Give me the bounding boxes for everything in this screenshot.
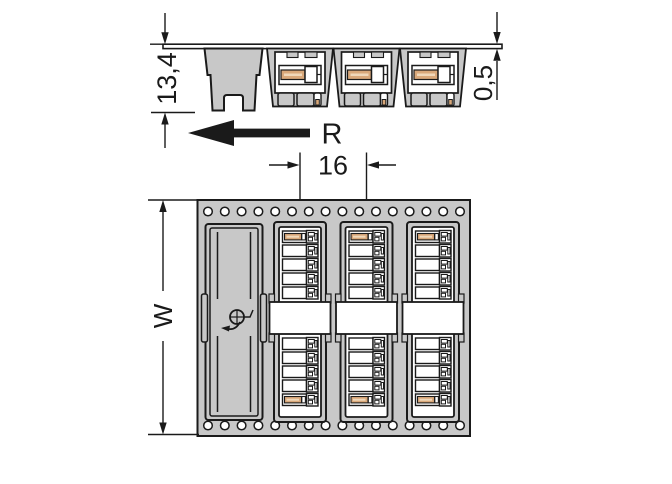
- technical-drawing: 13,4 0,5 R 16: [0, 0, 672, 484]
- height-dimension-label: 13,4: [152, 52, 182, 105]
- connector-strip-top-view-3: [402, 222, 464, 422]
- unreeling-direction-label: R: [322, 119, 343, 151]
- empty-pocket-top-view: [202, 224, 267, 420]
- dimension-tape-width: W: [148, 200, 199, 435]
- dimension-tape-thickness: 0,5: [468, 12, 501, 101]
- connector-strip-top-view-2: [336, 222, 398, 422]
- unreeling-direction: R: [188, 119, 342, 151]
- drawing-canvas: 13,4 0,5 R 16: [0, 0, 672, 484]
- tape-width-dimension-label: W: [148, 303, 178, 328]
- tape-thickness-dimension-label: 0,5: [468, 65, 498, 101]
- dimension-component-height: 13,4: [150, 13, 195, 148]
- connector-side-view-2: [334, 49, 400, 107]
- connector-strip-top-view-1: [269, 222, 331, 422]
- empty-pocket-side-view: [205, 49, 263, 111]
- connector-side-view-1: [267, 49, 333, 107]
- unreeling-direction-arrow-icon: [188, 120, 310, 146]
- top-view: W: [148, 200, 470, 436]
- connector-side-view-3: [400, 49, 466, 107]
- pocket-pitch-dimension-label: 16: [318, 151, 348, 181]
